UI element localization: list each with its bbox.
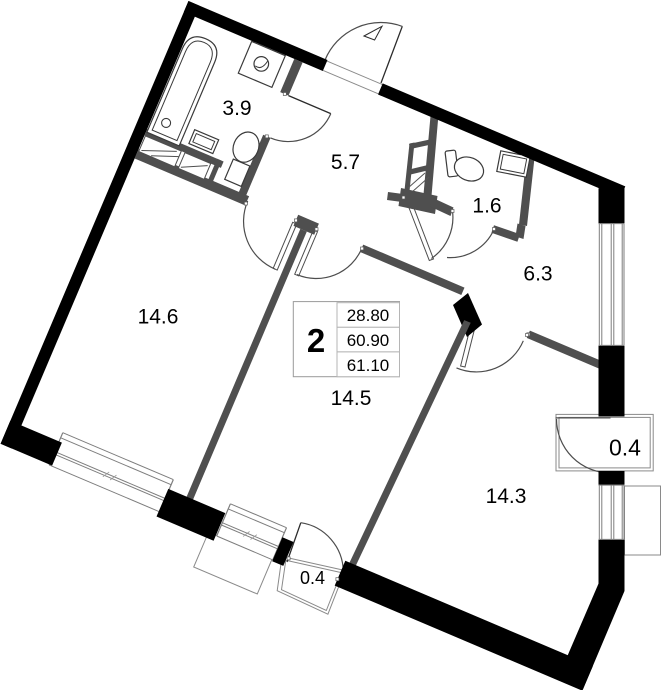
svg-text:0.4: 0.4	[300, 568, 325, 588]
svg-text:1.6: 1.6	[472, 195, 501, 218]
svg-text:6.3: 6.3	[523, 263, 552, 286]
svg-text:3.9: 3.9	[222, 97, 251, 120]
svg-text:2: 2	[307, 322, 325, 359]
svg-text:14.3: 14.3	[486, 485, 527, 508]
svg-text:0.4: 0.4	[609, 435, 641, 461]
svg-text:61.10: 61.10	[347, 356, 390, 375]
svg-text:14.6: 14.6	[138, 306, 179, 329]
svg-text:14.5: 14.5	[331, 387, 372, 410]
svg-text:28.80: 28.80	[347, 306, 390, 325]
svg-text:5.7: 5.7	[331, 151, 360, 174]
svg-text:60.90: 60.90	[347, 331, 390, 350]
